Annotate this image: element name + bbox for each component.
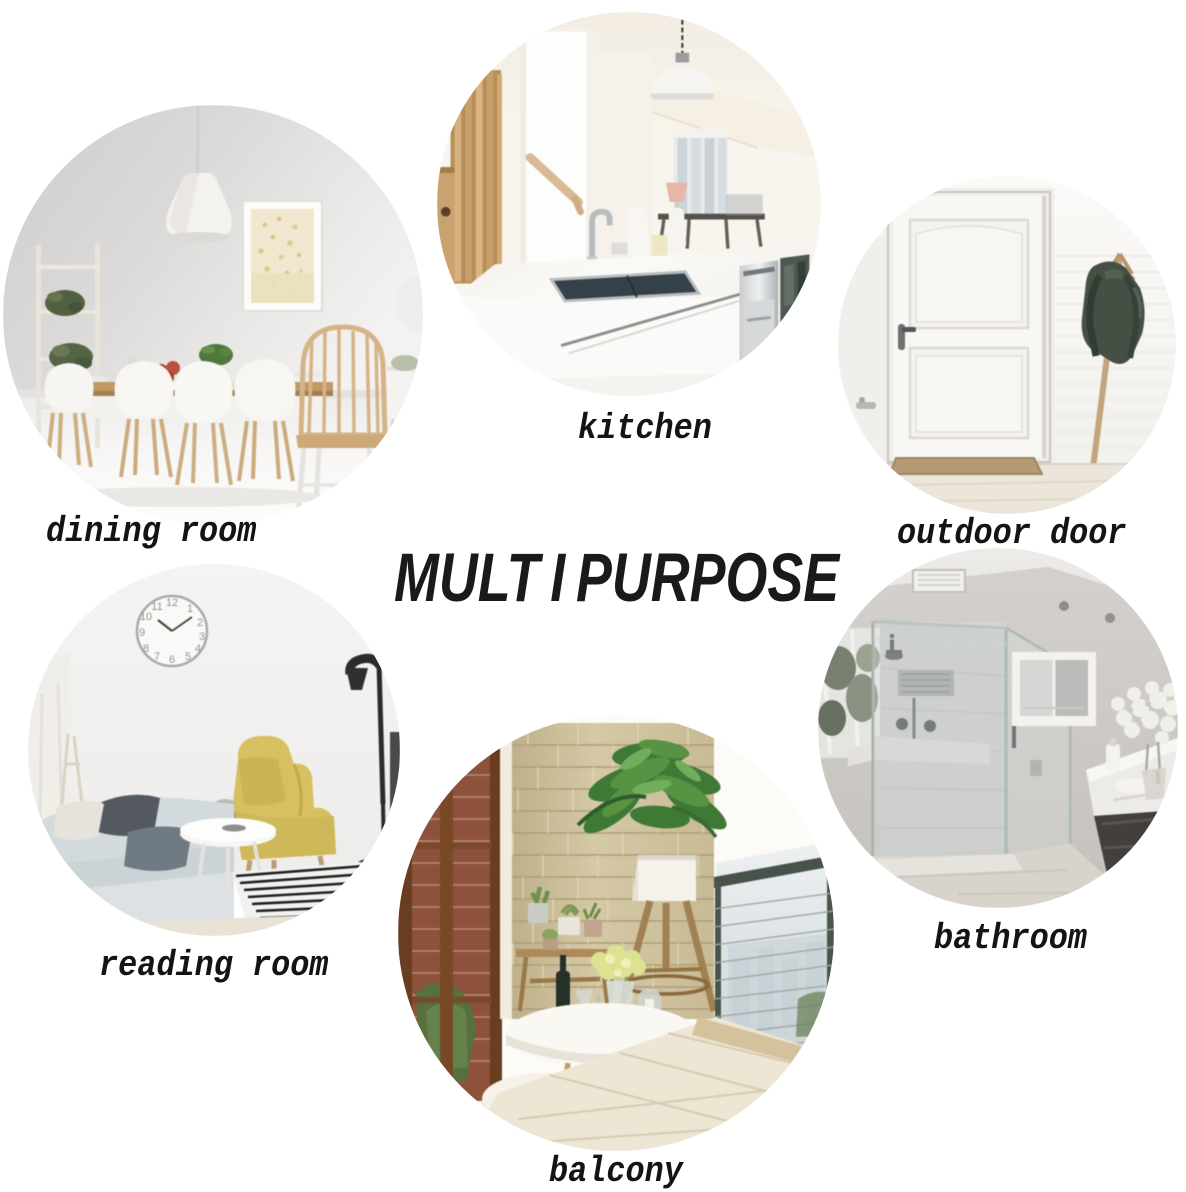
svg-text:11: 11 xyxy=(151,601,162,613)
svg-text:12: 12 xyxy=(166,597,178,609)
svg-text:8: 8 xyxy=(143,643,149,655)
svg-text:3: 3 xyxy=(199,631,205,643)
svg-text:5: 5 xyxy=(185,651,191,663)
svg-text:4: 4 xyxy=(195,643,201,655)
svg-text:10: 10 xyxy=(140,611,152,623)
svg-text:7: 7 xyxy=(154,651,160,663)
svg-text:9: 9 xyxy=(139,627,145,639)
svg-text:6: 6 xyxy=(169,654,175,666)
svg-text:1: 1 xyxy=(187,603,193,615)
svg-text:2: 2 xyxy=(197,617,203,629)
